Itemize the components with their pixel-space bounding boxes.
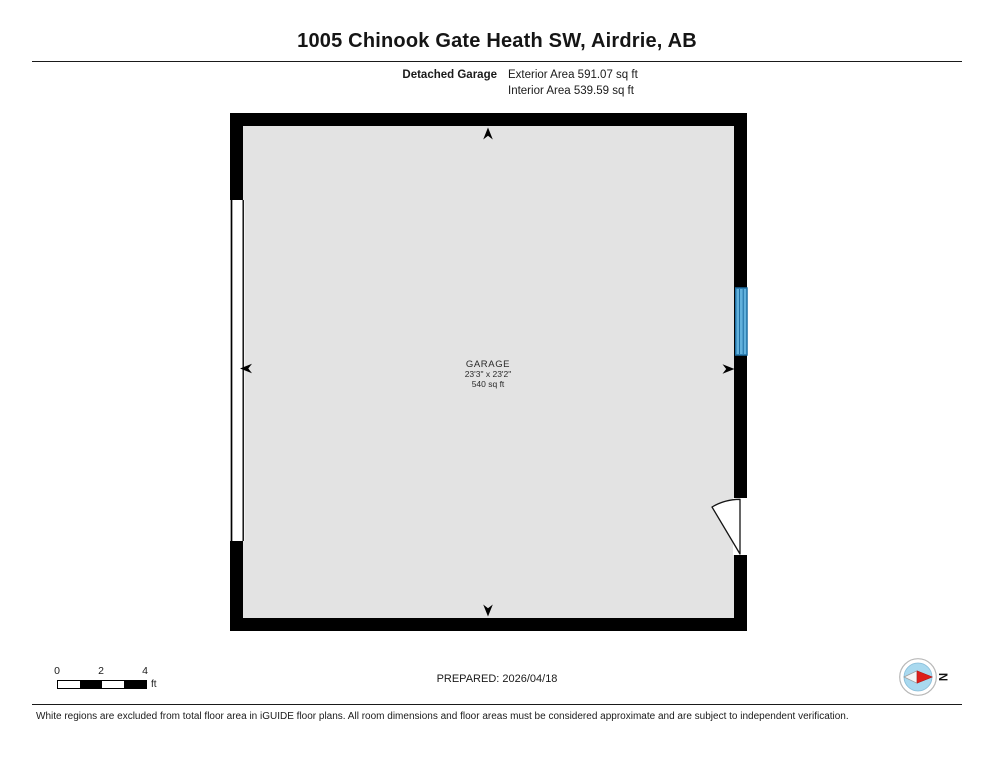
window-icon: [736, 288, 747, 355]
footer-divider: [32, 704, 962, 705]
disclaimer-text: White regions are excluded from total fl…: [36, 711, 849, 722]
compass-icon: N: [898, 657, 954, 699]
window-frame: [736, 288, 747, 355]
room-area: 540 sq ft: [358, 379, 618, 389]
room-dimensions: 23'3" x 23'2": [358, 369, 618, 379]
floor-plan-page: 1005 Chinook Gate Heath SW, Airdrie, AB …: [0, 0, 994, 768]
prepared-date: PREPARED: 2026/04/18: [0, 673, 994, 685]
compass-north-label: N: [936, 673, 948, 681]
garage-door-left: [229, 200, 245, 541]
